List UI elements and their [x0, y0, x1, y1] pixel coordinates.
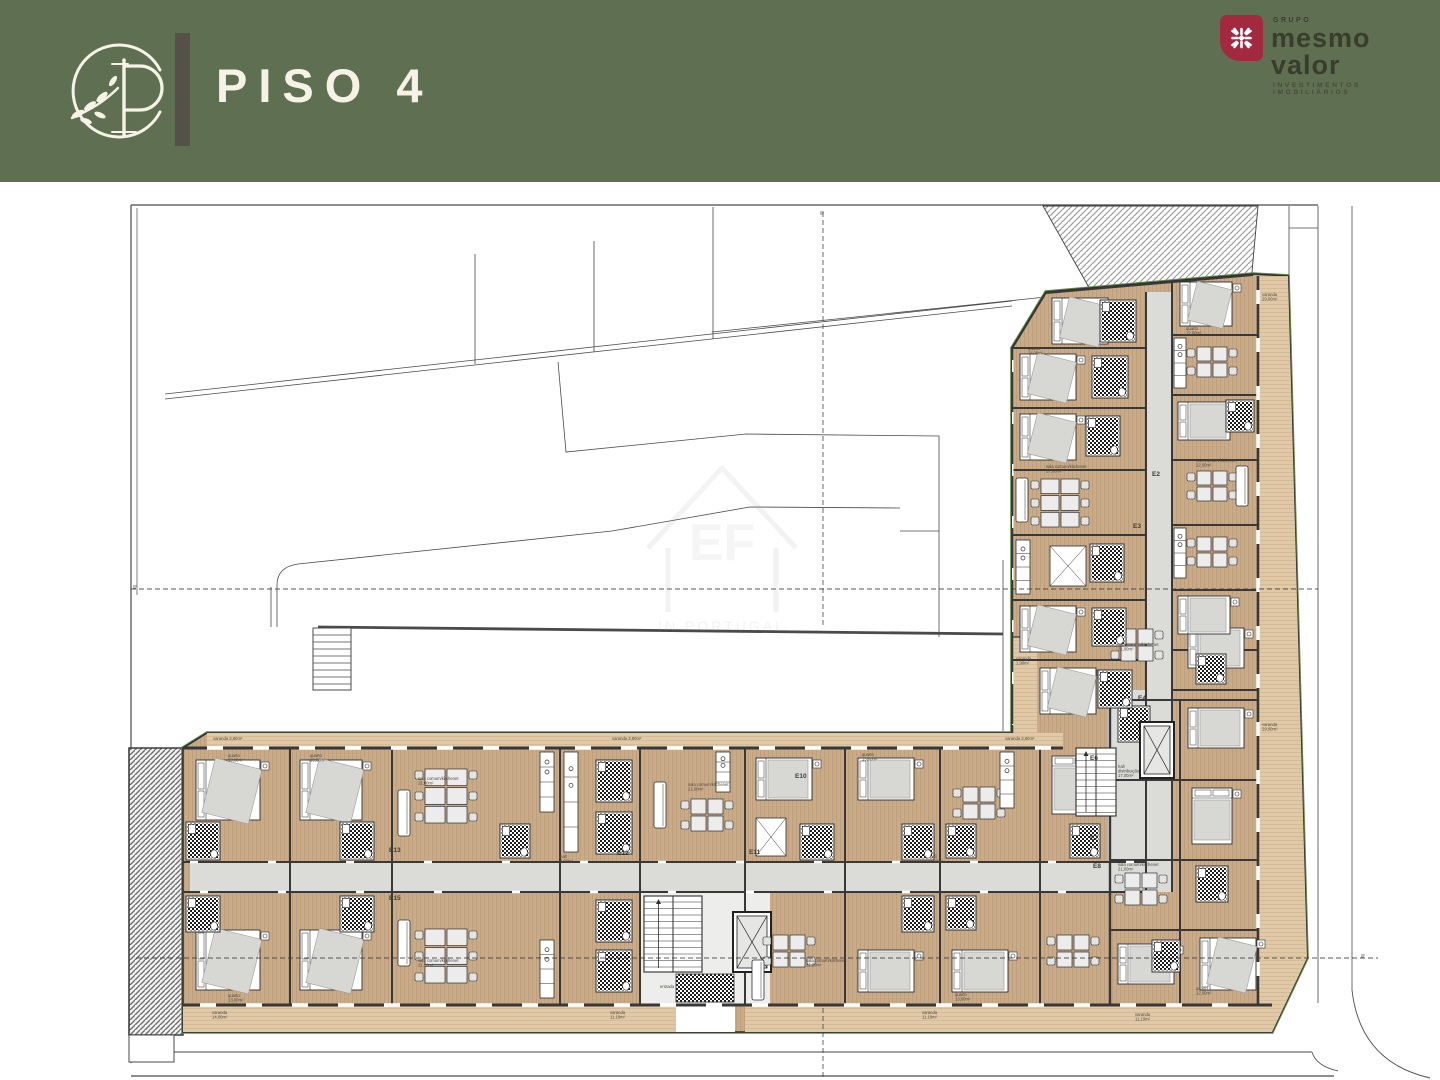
svg-text:E7: E7	[1090, 835, 1098, 842]
svg-text:E8: E8	[1093, 863, 1101, 870]
svg-text:E10: E10	[795, 773, 807, 780]
svg-text:varanda11,10m²: varanda11,10m²	[922, 1010, 938, 1020]
svg-text:E11: E11	[749, 849, 761, 856]
svg-text:varanda11,10m²: varanda11,10m²	[1135, 1012, 1151, 1022]
svg-text:varanda 3,80m²: varanda 3,80m²	[213, 736, 243, 741]
svg-text:varanda11,10m²: varanda11,10m²	[610, 1010, 626, 1020]
svg-text:entrada: entrada	[660, 984, 675, 989]
floor-plan-svg: varanda 3,80m²varanda 3,80m²varanda 3,80…	[0, 0, 1440, 1080]
floor-plan-drawing: varanda 3,80m²varanda 3,80m²varanda 3,80…	[0, 0, 1440, 1080]
svg-text:E13: E13	[389, 847, 401, 854]
page: { "header": { "title": "PISO 4", "colors…	[0, 0, 1440, 1080]
svg-text:varanda 3,80m²: varanda 3,80m²	[612, 736, 642, 741]
svg-text:IN PORTUGAL: IN PORTUGAL	[658, 618, 786, 634]
svg-text:varanda29,00m²: varanda29,00m²	[1262, 722, 1278, 732]
svg-text:varanda14,00m²: varanda14,00m²	[212, 1010, 228, 1020]
svg-text:E12: E12	[617, 850, 629, 857]
svg-text:E4: E4	[1138, 695, 1146, 702]
svg-text:EF: EF	[689, 514, 755, 572]
svg-text:E6: E6	[1090, 755, 1098, 762]
svg-text:E3: E3	[1133, 523, 1141, 530]
svg-text:varanda29,00m²: varanda29,00m²	[1262, 292, 1278, 302]
svg-text:E15: E15	[389, 895, 401, 902]
svg-text:E2: E2	[1152, 471, 1160, 478]
svg-text:varanda 3,80m²: varanda 3,80m²	[1005, 736, 1035, 741]
